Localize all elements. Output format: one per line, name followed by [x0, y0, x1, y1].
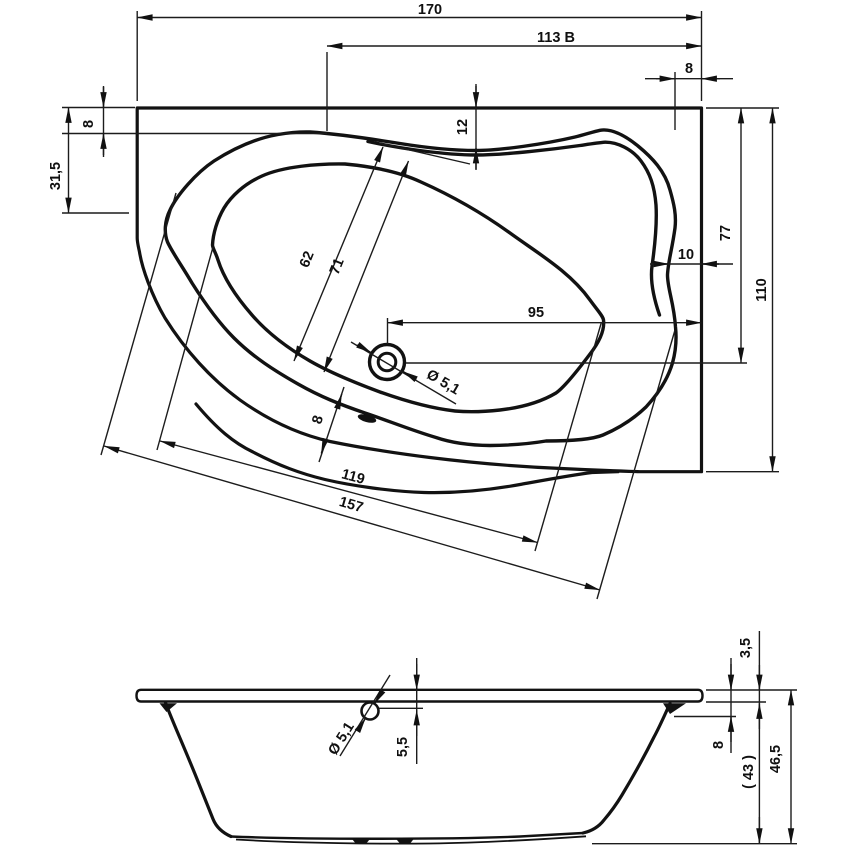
- svg-text:95: 95: [528, 305, 544, 321]
- svg-text:Ø 5,1: Ø 5,1: [325, 720, 357, 759]
- svg-text:8: 8: [685, 61, 693, 77]
- svg-text:170: 170: [418, 2, 442, 18]
- svg-text:31,5: 31,5: [48, 162, 64, 190]
- svg-text:Ø 5,1: Ø 5,1: [424, 367, 463, 399]
- svg-text:3,5: 3,5: [738, 638, 754, 658]
- svg-text:113 B: 113 B: [537, 30, 575, 46]
- svg-text:10: 10: [678, 247, 694, 263]
- svg-text:12: 12: [455, 119, 471, 135]
- svg-text:157: 157: [337, 494, 365, 516]
- svg-text:8: 8: [81, 120, 97, 128]
- svg-text:8: 8: [711, 741, 727, 749]
- svg-text:77: 77: [718, 225, 734, 241]
- svg-text:8: 8: [309, 414, 327, 426]
- svg-text:46,5: 46,5: [768, 745, 784, 773]
- svg-text:62: 62: [297, 249, 318, 270]
- svg-text:( 43 ): ( 43 ): [741, 755, 757, 789]
- svg-text:5,5: 5,5: [395, 737, 411, 757]
- svg-text:110: 110: [754, 278, 770, 301]
